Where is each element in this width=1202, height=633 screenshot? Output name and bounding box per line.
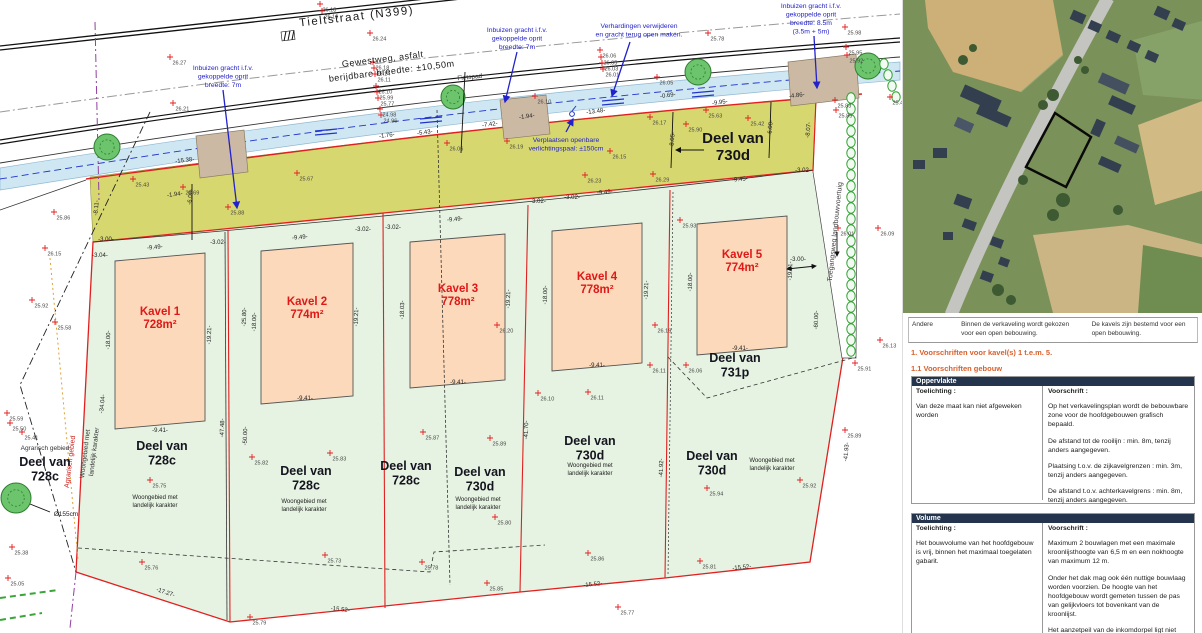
elevation-value: 26.29: [656, 178, 670, 184]
parcel-label: Deel van: [280, 464, 331, 478]
annotation-line: breedte: 7m: [205, 82, 242, 89]
zone-type-label: Woongebied met: [455, 497, 501, 503]
elevation-value: 25.43: [136, 183, 150, 189]
aerial-photo: [903, 0, 1202, 313]
elevation-marker: 25.38: [9, 544, 28, 557]
elevation-value: 25.83: [333, 457, 347, 463]
kavel-area-label: 728m²: [143, 319, 176, 331]
elevation-value: 25.92: [803, 484, 817, 490]
kavel-area-label: 774m²: [725, 262, 758, 274]
andere-voorschrift: De kavels zijn bestemd voor een open beb…: [1088, 321, 1197, 339]
oppervlakte-table: Oppervlakte Toelichting : Van deze maat …: [911, 376, 1195, 504]
elevation-marker: 26.10: [373, 83, 392, 96]
dimension-label: -15.52-: [583, 581, 603, 589]
parcel-label: Deel van: [564, 434, 615, 448]
parcel-number-label: 728c: [292, 479, 320, 493]
elevation-value: 24.96: [384, 119, 398, 125]
andere-label: Andere: [909, 321, 957, 339]
dimension-label: -3.02-: [795, 168, 811, 174]
voorschrift-text: De afstand tot de rooilijn : min. 8m, te…: [1048, 437, 1189, 455]
verkavelingsplan-screenshot: Kavel 1728m²Kavel 2774m²Kavel 3778m²Kave…: [0, 0, 1202, 633]
elevation-value: 25.82: [255, 461, 269, 467]
parcel-number-label: 728c: [392, 474, 420, 488]
elevation-value: 26.15: [613, 155, 627, 161]
elevation-value: 26.11: [653, 369, 666, 375]
elevation-marker: 26.21: [170, 100, 189, 113]
elevation-value: 26.10: [538, 100, 552, 106]
dimension-label: -19.21-: [354, 307, 361, 326]
tree-icon: [441, 85, 465, 109]
elevation-value: 25.78: [425, 566, 439, 572]
parcel-number-label: 731p: [721, 366, 750, 380]
elevation-value: 25.95: [849, 51, 863, 57]
dimension-label: -18.00-: [252, 312, 259, 331]
kavel-name-label: Kavel 4: [577, 271, 618, 283]
elevation-value: 26.20: [500, 329, 514, 335]
toelichting-text: Het bouwvolume van het hoofdgebouw is vr…: [916, 539, 1038, 567]
voorschrift-text: Onder het dak mag ook één nuttige bouwla…: [1048, 574, 1189, 620]
elevation-value: 26.19: [510, 145, 524, 151]
parcel-number-label: 730d: [698, 464, 727, 478]
elevation-value: 26.19: [658, 329, 672, 335]
elevation-marker: 25.98: [842, 24, 861, 37]
dimension-label: -3.02-: [210, 240, 226, 246]
elevation-value: 26.24: [373, 37, 387, 43]
voorschriften-subheading: 1.1 Voorschriften gebouw: [911, 364, 1002, 373]
tree-icon: [94, 134, 120, 160]
annotation-line: Inbuizen gracht i.f.v.: [487, 27, 547, 34]
elevation-marker: 26.24: [367, 30, 386, 43]
kavel-name-label: Kavel 1: [140, 306, 181, 318]
voorschriften-heading: 1. Voorschriften voor kavel(s) 1 t.e.m. …: [911, 348, 1052, 357]
kavel-name-label: Kavel 5: [722, 249, 763, 261]
dimension-label: -41.93-: [843, 442, 851, 461]
voorschrift-text: Het aanzetpeil van de inkomdorpel ligt n…: [1048, 626, 1189, 633]
dimension-label: -25.80-: [242, 307, 249, 326]
kavel-zone: [261, 243, 353, 404]
table-title: Oppervlakte: [912, 377, 1194, 386]
dimension-label: -19.21-: [506, 289, 513, 308]
parcel-label: Deel van: [702, 130, 764, 147]
elevation-value: 26.11: [591, 396, 604, 402]
dimension-label: -3.02-: [355, 227, 371, 233]
column-header: Toelichting :: [916, 388, 1038, 395]
dimension-label: -50.00-: [243, 426, 250, 445]
elevation-marker: 25.78: [705, 30, 724, 43]
voorschrift-text: Plaatsing t.o.v. de zijkavelgrenzen : mi…: [1048, 462, 1189, 480]
elevation-value: 25.85: [490, 587, 504, 593]
elevation-marker: 25.59: [4, 410, 23, 423]
elevation-value: 25.85: [839, 114, 853, 120]
dimension-label: -1.76-: [379, 132, 395, 140]
annotation-line: Verplaatsen openbare: [533, 137, 600, 144]
dimension-label: -9.41-: [589, 363, 605, 369]
elevation-value: 25.90: [689, 128, 703, 134]
elevation-value: 25.75: [153, 484, 167, 490]
elevation-marker: 26.15: [42, 245, 61, 258]
elevation-marker: 26.18: [317, 1, 336, 14]
blue-annotation: Verplaatsen openbareverlichtingspaal: ±1…: [529, 137, 604, 153]
street-label: Tieltstraat (N399): [299, 5, 415, 30]
elevation-value: 25.93: [683, 224, 697, 230]
elevation-value: 25.76: [145, 566, 159, 572]
zone-type-label: landelijk karakter: [455, 505, 500, 511]
elevation-value: 26.06: [603, 54, 617, 60]
tree-icon: [855, 53, 881, 79]
parcel-label: Deel van: [454, 465, 505, 479]
zone-type-label: landelijk karakter: [281, 507, 326, 513]
zone-type-label: Woongebied met: [749, 458, 795, 464]
elevation-value: 26.01: [841, 232, 855, 238]
elevation-value: 25.67: [300, 177, 314, 183]
annotation-line: Inbuizen gracht i.f.v.: [193, 65, 253, 72]
dimension-label: -13.48-: [586, 108, 606, 116]
parcel-label: Deel van: [19, 455, 70, 469]
elevation-value: 25.77: [621, 611, 635, 617]
elevation-value: 26.15: [48, 252, 62, 258]
zone-type-label: Woongebied met: [132, 495, 178, 501]
dimension-label: -9.41-: [297, 396, 313, 402]
voorschrift-text: Maximum 2 bouwlagen met een maximale kro…: [1048, 539, 1189, 567]
elevation-value: 26.23: [588, 179, 602, 185]
annotation-line: (3.5m + 5m): [793, 29, 830, 36]
annotation-line: verlichtingspaal: ±150cm: [529, 146, 604, 153]
dimension-label: -18.00-: [106, 330, 113, 349]
elevation-marker: 25.89: [842, 427, 861, 440]
dimension-label: -19.21-: [207, 325, 214, 344]
elevation-marker: 26.13: [877, 337, 896, 350]
dimension-label: -3.02-: [385, 225, 401, 231]
parcel-number-label: 730d: [466, 480, 495, 494]
elevation-value: 25.89: [848, 434, 862, 440]
dimension-label: -3.02-: [564, 195, 580, 201]
table-title: Volume: [912, 514, 1194, 523]
dimension-label: -3.04-: [92, 253, 108, 259]
kavel-area-label: 774m²: [290, 309, 323, 321]
dimension-label: -18.00-: [543, 285, 550, 304]
elevation-value: 25.59: [10, 417, 24, 423]
elevation-marker: 25.41: [19, 429, 38, 442]
street-label: Fietspad: [457, 73, 483, 83]
elevation-value: 25.94: [710, 492, 724, 498]
annotation-line: breedte: 7m: [499, 44, 536, 51]
parcel-label: Deel van: [709, 351, 760, 365]
elevation-value: 26.11: [378, 78, 391, 84]
zone-type-label: landelijk karakter: [567, 471, 612, 477]
blue-annotation: Inbuizen gracht i.f.v.gekoppelde opritbr…: [487, 27, 547, 51]
zone-type-label: Woongebied met: [567, 463, 613, 469]
elevation-value: 26.27: [173, 61, 187, 67]
volume-table: Volume Toelichting : Het bouwvolume van …: [911, 513, 1195, 633]
elevation-value: 25.86: [591, 557, 605, 563]
dimension-label: -60.00-: [814, 310, 821, 329]
elevation-value: 25.42: [751, 122, 765, 128]
elevation-value: 25.78: [711, 37, 725, 43]
voorschrift-text: Op het verkavelingsplan wordt de bebouwb…: [1048, 402, 1189, 430]
elevation-marker: 26.27: [167, 54, 186, 67]
kavel-zone: [410, 234, 505, 388]
parcel-number-label: 730d: [576, 449, 605, 463]
elevation-marker: 25.91: [852, 360, 871, 373]
tree-icon: [1, 483, 31, 513]
dimension-arrow: [30, 504, 50, 512]
elevation-value: 25.91: [858, 367, 872, 373]
elevation-value: 25.98: [848, 31, 862, 37]
elevation-marker: 26.06: [597, 47, 616, 60]
elevation-value: 25.86: [57, 216, 71, 222]
elevation-value: 25.88: [231, 211, 245, 217]
annotation-line: gekoppelde oprit: [492, 36, 542, 43]
elevation-value: 26.09: [881, 232, 895, 238]
hedge-dashes: [0, 613, 42, 620]
elevation-value: 26.10: [541, 397, 555, 403]
dimension-label: -18.00-: [688, 272, 695, 291]
driveway-oprit: [196, 130, 248, 178]
kavel-area-label: 778m²: [441, 296, 474, 308]
dimension-label: -18.03-: [400, 300, 407, 319]
dimension-label: -15.52-: [330, 606, 350, 614]
site-plan: Kavel 1728m²Kavel 2774m²Kavel 3778m²Kave…: [0, 0, 902, 633]
annotation-line: Inbuizen gracht i.f.v.: [781, 3, 841, 10]
parcel-label: Deel van: [380, 459, 431, 473]
column-header: Voorschrift :: [1048, 388, 1189, 395]
elevation-value: 25.77: [381, 102, 395, 108]
elevation-value: 25.92: [35, 304, 49, 310]
andere-table-row: Andere Binnen de verkaveling wordt gekoz…: [908, 317, 1198, 343]
elevation-marker: 26.09: [875, 225, 894, 238]
dimension-label: -41.92-: [659, 458, 666, 477]
elevation-value: 25.48: [893, 101, 903, 107]
elevation-marker: 25.86: [51, 209, 70, 222]
parcel-number-label: 730d: [716, 147, 750, 164]
elevation-value: 25.80: [498, 521, 512, 527]
dimension-label: -15.52-: [732, 564, 752, 572]
elevation-value: 25.41: [25, 436, 39, 442]
kavel-zone: [115, 253, 205, 429]
toelichting-text: Van deze maat kan niet afgeweken worden: [916, 402, 1038, 420]
hedge-dashes: [0, 590, 58, 598]
zone-type-label: landelijk karakter: [749, 466, 794, 472]
andere-toelichting: Binnen de verkaveling wordt gekozen voor…: [957, 321, 1087, 339]
elevation-value: 25.81: [703, 565, 717, 571]
blue-annotation: Inbuizen gracht i.f.v.gekoppelde opritbr…: [193, 65, 253, 89]
kavel-area-label: 778m²: [580, 284, 613, 296]
annotation-line: Verhardingen verwijderen: [600, 23, 677, 30]
elevation-value: 25.89: [493, 442, 507, 448]
elevation-value: 26.06: [689, 369, 703, 375]
elevation-value: 26.13: [883, 344, 897, 350]
annotation-line: breedte: 8.5m: [790, 20, 832, 27]
elevation-marker: 25.58: [52, 319, 71, 332]
elevation-value: 25.92: [850, 59, 864, 65]
annotation-line: en gracht terug open maken.: [596, 32, 683, 39]
parcel-label: Deel van: [686, 449, 737, 463]
dimension-label: -3.00-: [98, 237, 114, 243]
elevation-value: 25.58: [58, 326, 72, 332]
annotation-line: gekoppelde oprit: [786, 12, 836, 19]
kavel-zone: [697, 216, 787, 355]
plan-drawing: Kavel 1728m²Kavel 2774m²Kavel 3778m²Kave…: [0, 0, 902, 633]
dimension-label: -19.21-: [644, 280, 651, 299]
annotation-line: gekoppelde oprit: [198, 74, 248, 81]
tree-icon: [685, 59, 711, 85]
zone-type-label: landelijk karakter: [132, 503, 177, 509]
column-header: Toelichting :: [916, 525, 1038, 532]
kavel-name-label: Kavel 2: [287, 296, 327, 308]
street-label: Ø155cm: [54, 511, 79, 518]
elevation-value: 25.87: [426, 436, 440, 442]
dimension-label: -9.41-: [152, 428, 168, 434]
parcel-label: Deel van: [136, 439, 187, 453]
elevation-value: 26.01: [606, 73, 620, 79]
parcel-number-label: 728c: [31, 470, 59, 484]
elevation-value: 25.73: [328, 559, 342, 565]
dimension-label: -3.02-: [530, 199, 546, 205]
zone-type-label: Agrarisch gebied: [21, 445, 70, 452]
aerial-photo-image: [903, 0, 1202, 313]
elevation-marker: 25.05: [5, 575, 24, 588]
column-header: Voorschrift :: [1048, 525, 1189, 532]
elevation-marker: 25.92: [29, 297, 48, 310]
elevation-value: 26.05: [660, 81, 674, 87]
blue-annotation: Verhardingen verwijderenen gracht terug …: [596, 23, 683, 39]
elevation-marker: 25.77: [615, 604, 634, 617]
side-panel: Andere Binnen de verkaveling wordt gekoz…: [902, 0, 1202, 633]
dimension-label: -47.48-: [220, 418, 227, 437]
kavel-zone: [552, 223, 642, 371]
elevation-value: 25.05: [11, 582, 25, 588]
elevation-value: 25.38: [15, 551, 29, 557]
elevation-value: 25.83: [838, 104, 852, 110]
elevation-value: 26.17: [653, 121, 667, 127]
dimension-label: -9.41-: [450, 380, 466, 386]
voorschrift-text: De afstand t.o.v. achterkavelgrens : min…: [1048, 487, 1189, 505]
dimension-label: -41.70-: [524, 420, 531, 439]
zone-type-label: Woongebied met: [281, 499, 327, 505]
elevation-value: 25.63: [709, 114, 723, 120]
parcel-number-label: 728c: [148, 454, 176, 468]
dimension-label: -19.21-: [788, 261, 795, 280]
kavel-name-label: Kavel 3: [438, 283, 478, 295]
elevation-value: 25.79: [253, 621, 267, 627]
elevation-value: 26.21: [176, 107, 190, 113]
road-hatch-symbol: [281, 30, 295, 41]
